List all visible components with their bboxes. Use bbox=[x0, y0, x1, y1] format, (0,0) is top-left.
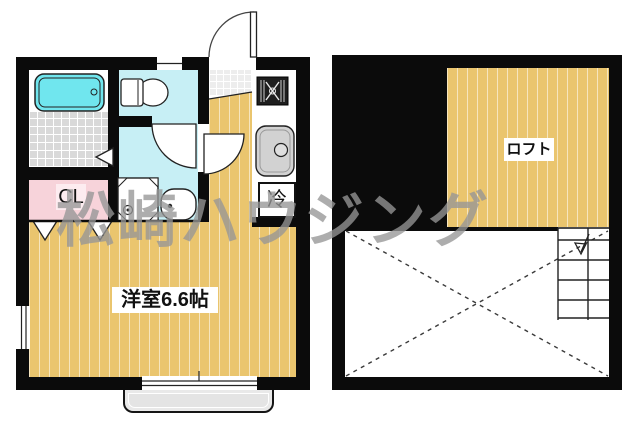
balcony bbox=[123, 388, 274, 413]
wall-above-closet bbox=[29, 167, 108, 180]
bathroom-tile-floor bbox=[29, 112, 108, 167]
kitchen-corridor-floor bbox=[209, 92, 252, 222]
void-area bbox=[345, 231, 609, 377]
wall-below-fridge bbox=[252, 217, 296, 227]
south-window bbox=[142, 376, 257, 390]
entrance-genkan-floor bbox=[209, 70, 252, 96]
closet-label: CL bbox=[56, 184, 86, 210]
refrigerator-label: 冷 bbox=[258, 182, 296, 218]
loft-edge-line bbox=[345, 227, 558, 231]
wall-right-bottom bbox=[332, 377, 622, 390]
balcony-inner-line bbox=[128, 393, 269, 408]
entrance-opening bbox=[209, 57, 256, 70]
entrance-door-icon bbox=[209, 12, 257, 57]
main-room-label: 洋室6.6帖 bbox=[112, 287, 218, 313]
wall-right-west bbox=[332, 55, 345, 390]
wall-right-east bbox=[609, 55, 622, 390]
wall-right-top bbox=[332, 55, 622, 68]
wall-hall-lower bbox=[198, 172, 209, 222]
west-window bbox=[16, 306, 30, 349]
wall-toilet-bottom bbox=[108, 116, 152, 127]
wall-bath-divider bbox=[108, 70, 119, 222]
wall-left-east bbox=[296, 57, 310, 390]
toilet-window bbox=[157, 57, 182, 70]
loft-black-area bbox=[332, 55, 447, 231]
toilet-room-floor bbox=[119, 70, 198, 117]
floorplan-canvas: 洋室6.6帖 CL 冷 ロフト bbox=[0, 0, 640, 421]
washroom-floor bbox=[119, 117, 198, 222]
wall-hall-upper bbox=[198, 70, 209, 124]
bathroom-floor bbox=[29, 70, 108, 112]
loft-label: ロフト bbox=[504, 138, 554, 161]
